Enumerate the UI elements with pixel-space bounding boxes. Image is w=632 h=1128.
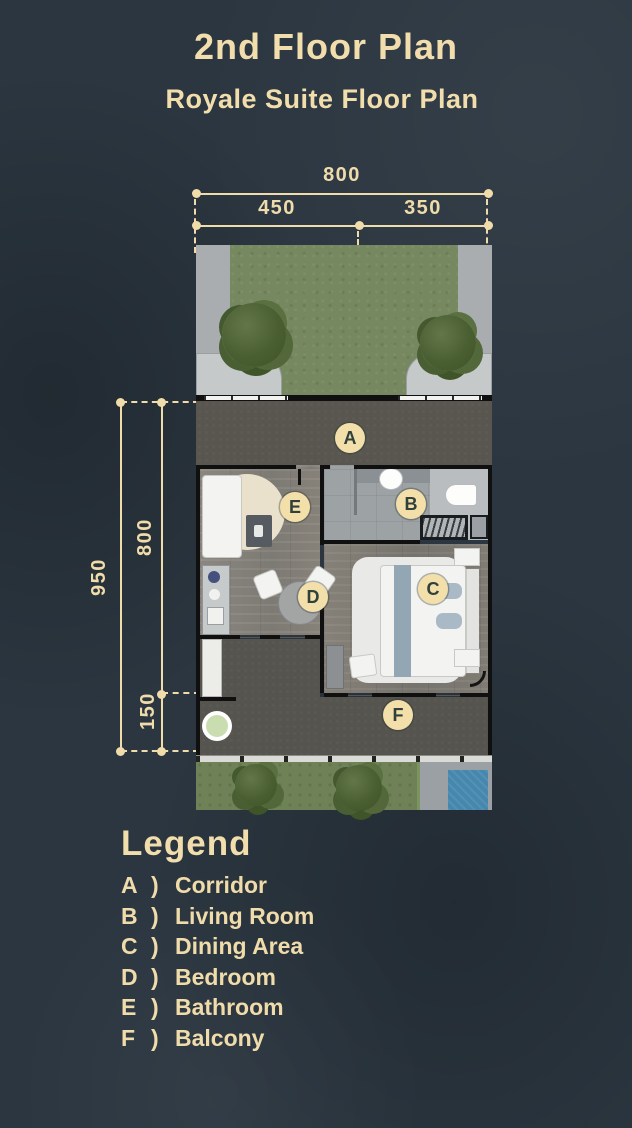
page-background: 2nd Floor Plan Royale Suite Floor Plan 8…: [0, 0, 632, 1128]
room-badge-b: B: [396, 489, 426, 519]
dim-side-total-label: 950: [88, 537, 112, 617]
pillow: [436, 613, 462, 629]
chair: [349, 653, 378, 678]
balcony-planter: [202, 639, 222, 697]
dim-extension-line: [162, 692, 200, 694]
legend-item-living-room: B)Living Room: [121, 903, 421, 934]
legend-letter: E: [121, 994, 151, 1021]
legend-item-balcony: F)Balcony: [121, 1025, 421, 1056]
vanity-sink: [208, 571, 220, 583]
legend-label: Corridor: [175, 872, 267, 899]
legend-letter: B: [121, 903, 151, 930]
dim-top-total-label: 800: [196, 164, 488, 187]
interior-wall: [260, 635, 280, 639]
dim-top-segments-line: [196, 225, 488, 227]
legend-separator: ): [151, 933, 175, 960]
legend-label: Bathroom: [175, 994, 284, 1021]
interior-wall: [200, 635, 240, 639]
tv-cabinet: [326, 645, 344, 689]
door-opening: [348, 695, 372, 696]
dim-top-right-label: 350: [358, 197, 488, 220]
legend-label: Dining Area: [175, 933, 303, 960]
daybed: [202, 475, 242, 558]
dim-top-total-line: [196, 193, 488, 195]
room-badge-d: D: [298, 582, 328, 612]
interior-wall: [324, 540, 420, 544]
vanity-basin: [207, 607, 224, 625]
door-opening: [280, 637, 305, 638]
dim-midpoint-dot: [355, 221, 364, 230]
legend-separator: ): [151, 872, 175, 899]
room-badge-e: E: [280, 492, 310, 522]
legend-letter: F: [121, 1025, 151, 1052]
legend-label: Living Room: [175, 903, 314, 930]
partition-wall: [354, 469, 357, 515]
tree-icon: [222, 303, 286, 367]
dim-top-left-label: 450: [196, 197, 358, 220]
exterior-wall-right: [488, 465, 492, 755]
legend-item-corridor: A)Corridor: [121, 872, 421, 903]
bush-icon: [336, 765, 382, 811]
interior-wall: [460, 693, 488, 697]
legend-letter: A: [121, 872, 151, 899]
bush-icon: [235, 764, 277, 806]
dim-side-segments-line: [161, 402, 163, 752]
room-badge-c: C: [418, 574, 448, 604]
legend-separator: ): [151, 994, 175, 1021]
interior-wall: [305, 635, 324, 639]
legend-label: Bedroom: [175, 964, 276, 991]
sink: [380, 469, 402, 489]
legend-letter: D: [121, 964, 151, 991]
nightstand: [454, 548, 480, 566]
room-badge-a: A: [335, 423, 365, 453]
interior-wall: [372, 693, 436, 697]
vanity-item: [209, 589, 220, 600]
interior-wall: [320, 469, 324, 545]
tree-icon: [420, 315, 476, 371]
dim-extension-line: [121, 750, 199, 752]
toilet: [446, 485, 476, 505]
legend-letter: C: [121, 933, 151, 960]
floor-plan-title: 2nd Floor Plan: [10, 26, 632, 68]
legend-separator: ): [151, 903, 175, 930]
legend-item-bathroom: E)Bathroom: [121, 994, 421, 1025]
table-item: [254, 525, 263, 537]
window: [204, 396, 288, 400]
floor-plan: A B C D E F: [196, 245, 492, 810]
legend-separator: ): [151, 1025, 175, 1052]
balcony-railing: [196, 755, 492, 762]
room-badge-f: F: [383, 700, 413, 730]
swimming-pool: [448, 770, 488, 810]
floor-plan-subtitle: Royale Suite Floor Plan: [6, 84, 632, 115]
door-opening: [330, 465, 354, 469]
legend-item-dining-area: C)Dining Area: [121, 933, 421, 964]
legend-separator: ): [151, 964, 175, 991]
dim-side-upper-label: 800: [134, 497, 158, 577]
bed-runner: [394, 565, 411, 677]
wardrobe: [420, 515, 468, 540]
cabinet: [470, 515, 488, 539]
window: [398, 396, 482, 400]
exterior-wall-left: [196, 465, 200, 755]
interior-wall: [324, 693, 348, 697]
door-leaf: [298, 469, 301, 485]
potted-plant-leaves: [206, 715, 228, 737]
balcony-wall: [200, 697, 236, 701]
hedge-strip: [417, 762, 420, 810]
dim-side-lower-label: 150: [137, 671, 161, 751]
legend: A)Corridor B)Living Room C)Dining Area D…: [121, 872, 421, 1055]
legend-title: Legend: [121, 824, 251, 864]
legend-item-bedroom: D)Bedroom: [121, 964, 421, 995]
door-opening: [436, 695, 460, 696]
legend-label: Balcony: [175, 1025, 264, 1052]
dim-extension-line: [121, 401, 199, 403]
door-opening: [240, 637, 260, 638]
dim-side-total-line: [120, 402, 122, 752]
